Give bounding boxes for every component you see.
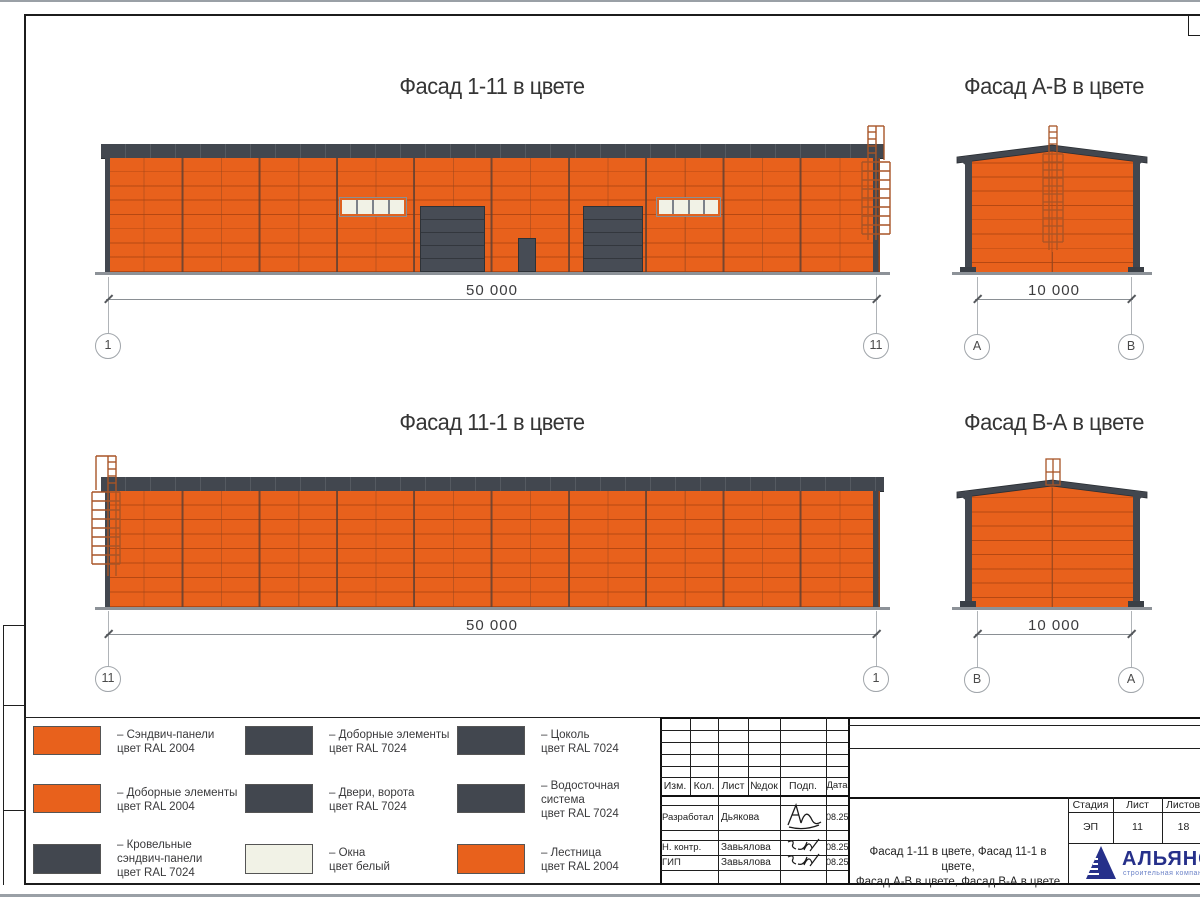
legend-label: – Доборные элементы цвет RAL 7024 — [329, 728, 449, 756]
tb-line — [1068, 812, 1200, 813]
dimension-label: 10 000 — [954, 617, 1154, 634]
corner-column — [965, 156, 972, 273]
drawing-sheet: Фасад 1-11 в цвете — [0, 0, 1200, 900]
grid-bubble: 1 — [95, 333, 121, 359]
col-list: Лист — [718, 780, 748, 792]
corner-trim — [105, 158, 110, 272]
facade-wall — [105, 491, 880, 607]
legend-label: – Цоколь цвет RAL 7024 — [541, 728, 619, 756]
signature — [785, 853, 823, 868]
legend-swatch — [457, 726, 525, 755]
sectional-gate — [583, 206, 643, 272]
stage-label: Стадия — [1068, 799, 1113, 811]
dimension-line — [975, 634, 1133, 635]
company-logo-icon — [1085, 845, 1117, 881]
sheets-label: Листов — [1166, 799, 1200, 811]
ground-line — [95, 607, 890, 610]
staff-name: Завьялова — [721, 842, 771, 853]
frame-corner-box — [1188, 14, 1200, 36]
extension-line — [876, 277, 877, 333]
facade-B-A-title: Фасад В-А в цвете — [912, 409, 1197, 436]
col-data: Дата — [826, 780, 848, 791]
facade-1-11-title: Фасад 1-11 в цвете — [302, 73, 682, 100]
margin-strip-divider — [3, 810, 24, 811]
legend-swatch — [33, 784, 101, 813]
legend-swatch — [245, 784, 313, 813]
grid-bubble: 11 — [863, 333, 889, 359]
col-izm: Изм. — [660, 780, 690, 792]
extension-line — [876, 611, 877, 666]
tb-line — [660, 795, 848, 797]
title-block: Изм. Кол. Лист №док Подп. Дата Разработа… — [660, 717, 1200, 885]
signature — [785, 838, 823, 853]
tb-line — [660, 717, 1200, 719]
col-ndok: №док — [748, 780, 780, 792]
dimension-label: 10 000 — [954, 282, 1154, 299]
window-strip — [340, 198, 406, 216]
panel-seam — [1052, 488, 1053, 607]
entry-door — [518, 238, 536, 272]
stage-value: ЭП — [1068, 821, 1113, 833]
legend-swatch — [245, 726, 313, 755]
grid-bubble: А — [1118, 667, 1144, 693]
sheet-bottom-edge — [0, 894, 1200, 897]
tb-line — [660, 830, 848, 831]
facade-A-B-title: Фасад А-В в цвете — [912, 73, 1197, 100]
tb-line — [848, 748, 1200, 749]
grid-bubble: А — [964, 334, 990, 360]
company-tagline: строительная компания — [1123, 870, 1200, 877]
facade-11-1-title: Фасад 11-1 в цвете — [302, 409, 682, 436]
roof-ladder-icon — [856, 120, 896, 246]
legend-label: – Двери, ворота цвет RAL 7024 — [329, 786, 414, 814]
signature — [784, 801, 824, 829]
dimension-line — [106, 299, 878, 300]
window-pane — [705, 200, 718, 214]
dimension-line — [106, 634, 878, 635]
col-kol: Кол. — [690, 780, 718, 792]
tb-line — [660, 754, 848, 755]
margin-strip-line — [3, 625, 4, 885]
roof-ladder-icon — [86, 450, 126, 582]
corner-trim — [873, 491, 878, 607]
dimension-label: 50 000 — [292, 617, 692, 634]
grid-bubble: В — [964, 667, 990, 693]
tb-line — [660, 766, 848, 767]
sheets-total: 18 — [1162, 821, 1200, 833]
window-pane — [358, 200, 372, 214]
corner-column — [965, 491, 972, 608]
sheet-label: Лист — [1113, 799, 1162, 811]
staff-date: 08.25 — [826, 812, 848, 822]
staff-role: ГИП — [662, 857, 681, 868]
extension-line — [108, 611, 109, 666]
tb-line — [660, 742, 848, 743]
tb-line — [660, 777, 848, 778]
staff-date: 08.25 — [826, 842, 848, 852]
legend-label: – Кровельные сэндвич-панели цвет RAL 702… — [117, 838, 202, 880]
window-pane — [390, 200, 404, 214]
sectional-gate — [420, 206, 485, 272]
staff-role: Н. контр. — [662, 842, 701, 853]
staff-name: Дьякова — [721, 812, 759, 823]
tb-line — [848, 725, 1200, 726]
window-strip — [657, 198, 720, 216]
sheet-number: 11 — [1113, 821, 1162, 833]
roof-band — [101, 144, 884, 159]
roof-band — [101, 477, 884, 492]
grid-bubble: 1 — [863, 666, 889, 692]
legend-swatch — [245, 844, 313, 874]
window-pane — [374, 200, 388, 214]
grid-bubble: В — [1118, 334, 1144, 360]
margin-strip-divider — [3, 705, 24, 706]
corner-column — [1133, 491, 1140, 608]
staff-role: Разработал — [662, 812, 714, 823]
legend-swatch — [33, 726, 101, 755]
legend-swatch — [457, 844, 525, 874]
company-name: АЛЬЯНС — [1122, 848, 1200, 871]
window-pane — [342, 200, 356, 214]
window-pane — [690, 200, 703, 214]
staff-name: Завьялова — [721, 857, 771, 868]
panel-seam — [1052, 252, 1053, 272]
margin-strip-divider — [3, 625, 24, 626]
document-title: Фасад 1-11 в цвете, Фасад 11-1 в цвете, … — [852, 845, 1064, 890]
sheet-top-edge — [0, 0, 1200, 2]
tb-line — [1068, 843, 1200, 844]
corner-column — [1133, 156, 1140, 273]
legend-label: – Окна цвет белый — [329, 846, 390, 874]
facade-wall — [105, 158, 880, 272]
legend-swatch — [33, 844, 101, 874]
tb-line — [1162, 797, 1163, 843]
extension-line — [108, 277, 109, 333]
ground-line — [952, 607, 1152, 610]
dimension-label: 50 000 — [292, 282, 692, 299]
grid-bubble: 11 — [95, 666, 121, 692]
legend-label: – Лестница цвет RAL 2004 — [541, 846, 619, 874]
tb-line — [660, 730, 848, 731]
dimension-line — [975, 299, 1133, 300]
window-pane — [674, 200, 687, 214]
window-pane — [659, 200, 672, 214]
tb-line — [660, 870, 848, 871]
col-podp: Подп. — [780, 780, 826, 792]
legend-label: – Доборные элементы цвет RAL 2004 — [117, 786, 237, 814]
ladder-top-icon — [1044, 457, 1062, 489]
ground-line — [95, 272, 890, 275]
legend-label: – Сэндвич-панели цвет RAL 2004 — [117, 728, 214, 756]
legend-label: – Водосточная система цвет RAL 7024 — [541, 779, 620, 821]
staff-date: 08.25 — [826, 857, 848, 867]
ground-line — [952, 272, 1152, 275]
legend-swatch — [457, 784, 525, 813]
cage-ladder-icon — [1040, 124, 1066, 254]
